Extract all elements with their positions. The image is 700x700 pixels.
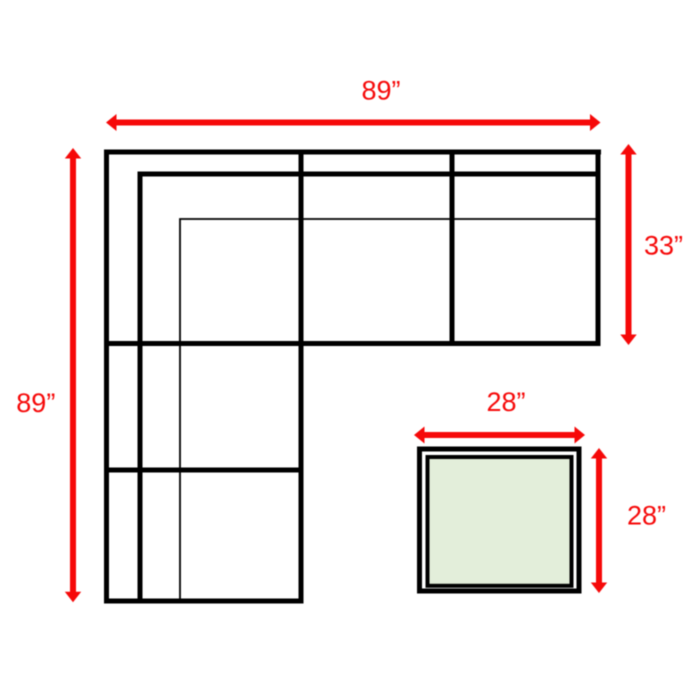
svg-text:33”: 33” [644, 231, 683, 261]
svg-text:28”: 28” [486, 387, 525, 417]
svg-text:28”: 28” [627, 501, 666, 531]
svg-text:89”: 89” [361, 76, 400, 106]
svg-text:89”: 89” [16, 388, 55, 418]
